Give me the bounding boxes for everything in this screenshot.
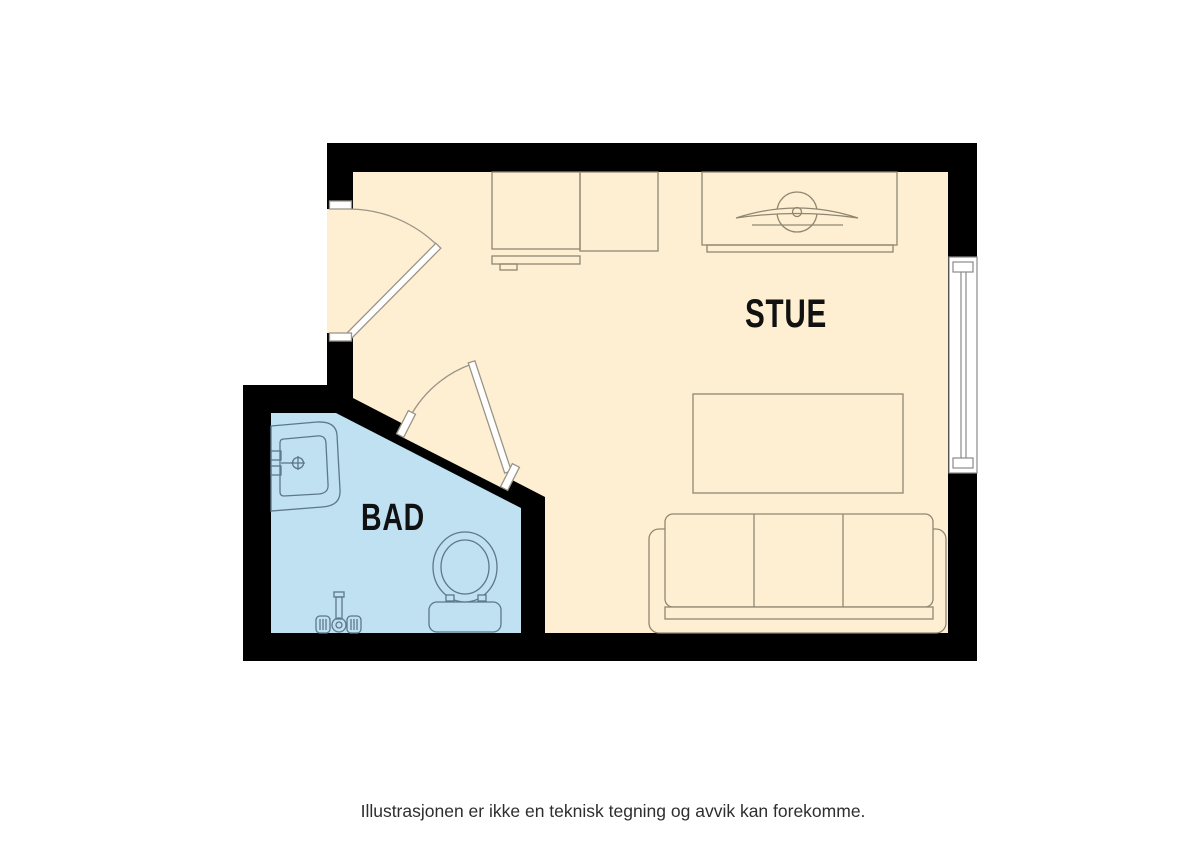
toilet-tank [429,602,501,632]
disclaimer-text: Illustrasjonen er ikke en teknisk tegnin… [361,801,866,821]
toilet-hinge-left [446,595,454,601]
toilet-bowl [433,532,497,602]
window-sill-bottom [953,458,973,468]
entry-door-jamb-bottom [330,333,352,341]
floor-plan-page: STUE BAD Illustrasjonen er ikke en tekni… [0,0,1200,848]
entry-door-opening [327,209,353,333]
sofa-cushions [665,514,933,607]
toilet-hinge-right [478,595,486,601]
floor-plan: STUE BAD Illustrasjonen er ikke en tekni… [0,0,1200,848]
sofa-front-edge [665,607,933,619]
window-frame [949,257,977,473]
window-sill-top [953,262,973,272]
room-label-bad: BAD [361,497,425,539]
room-label-stue: STUE [745,292,827,336]
window [949,257,977,473]
entry-door-jamb-top [330,201,352,209]
